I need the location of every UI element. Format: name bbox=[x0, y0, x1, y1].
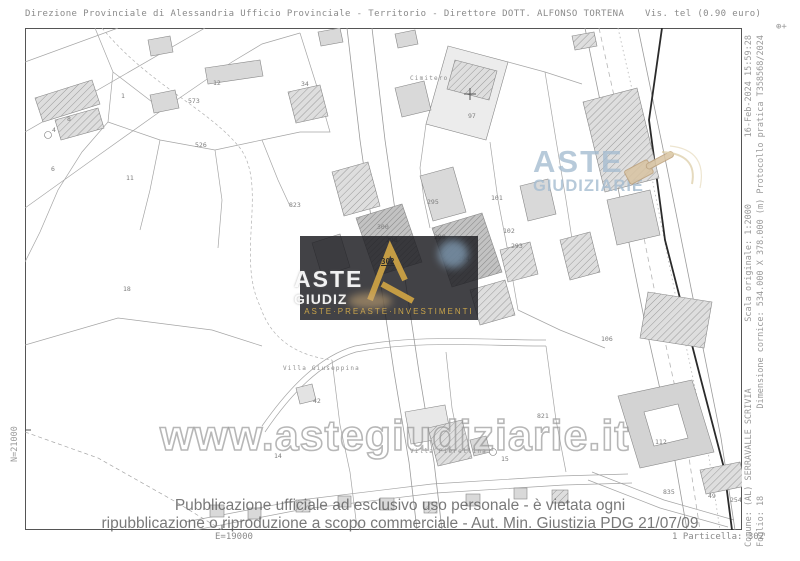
map-label: 300 bbox=[377, 223, 389, 231]
disclaimer-line1: Pubblicazione ufficiale ad esclusivo uso… bbox=[101, 497, 698, 515]
map-label: 11 bbox=[126, 174, 134, 182]
map-label: 295 bbox=[427, 198, 439, 206]
map-label: 8 bbox=[67, 115, 71, 123]
map-label: Villa Giuseppina bbox=[283, 365, 360, 372]
well-symbol bbox=[45, 132, 52, 139]
target-parcel-label: 302 bbox=[381, 257, 395, 266]
swirl-decoration bbox=[348, 293, 392, 309]
map-label: 835 bbox=[663, 488, 675, 496]
map-label: Cimitero bbox=[410, 75, 449, 82]
map-label: 6 bbox=[51, 165, 55, 173]
cadastral-map-page: Direzione Provinciale di Alessandria Uff… bbox=[0, 0, 800, 561]
watermark-disclaimer: Pubblicazione ufficiale ad esclusivo uso… bbox=[101, 497, 698, 533]
gavel-icon bbox=[600, 140, 720, 215]
map-label: 1 bbox=[121, 92, 125, 100]
logo-center-line1: ASTE bbox=[294, 268, 363, 291]
map-label: 102 bbox=[503, 227, 515, 235]
disclaimer-line2: ripubblicazione o riproduzione a scopo c… bbox=[101, 515, 698, 533]
map-label: 97 bbox=[468, 112, 476, 120]
map-label: 12 bbox=[213, 79, 221, 87]
map-label: 4 bbox=[52, 126, 56, 134]
watermark-url: www.astegiudiziarie.it bbox=[160, 412, 630, 461]
logo-tagline: ASTE·PREASTE·INVESTIMENTI bbox=[300, 307, 478, 316]
map-label: 34 bbox=[301, 80, 309, 88]
map-label: 823 bbox=[289, 201, 301, 209]
map-label: 101 bbox=[491, 194, 503, 202]
map-label: 254 bbox=[730, 496, 742, 504]
map-label: 106 bbox=[601, 335, 613, 343]
map-label: 573 bbox=[188, 97, 200, 105]
map-label: 42 bbox=[313, 397, 321, 405]
map-label: 49 bbox=[708, 492, 716, 500]
map-label: 526 bbox=[195, 141, 207, 149]
map-label: 18 bbox=[123, 285, 131, 293]
map-label: 293 bbox=[511, 242, 523, 250]
map-label: 112 bbox=[655, 438, 667, 446]
swirl-decoration bbox=[438, 240, 468, 268]
